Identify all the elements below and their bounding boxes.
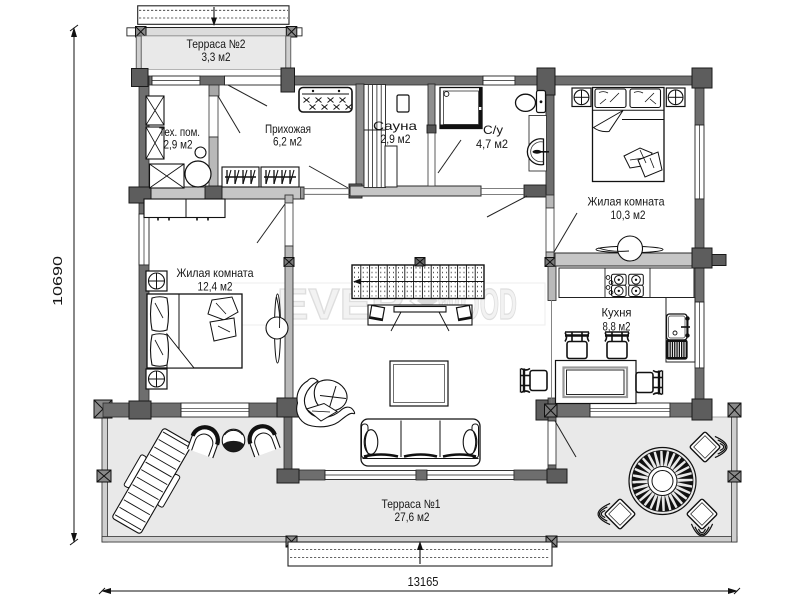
- svg-text:6,2 м2: 6,2 м2: [273, 135, 302, 149]
- svg-text:Жилая комната: Жилая комната: [177, 266, 254, 280]
- svg-text:27,6 м2: 27,6 м2: [395, 510, 430, 524]
- svg-text:Жилая комната: Жилая комната: [588, 195, 665, 209]
- svg-text:12,4 м2: 12,4 м2: [198, 280, 233, 294]
- svg-text:Терраса №1: Терраса №1: [382, 497, 441, 511]
- svg-text:3,3 м2: 3,3 м2: [202, 50, 231, 64]
- svg-text:8,8 м2: 8,8 м2: [603, 320, 631, 334]
- svg-text:10690: 10690: [50, 256, 65, 306]
- svg-text:Сауна: Сауна: [373, 119, 417, 133]
- svg-text:4,7 м2: 4,7 м2: [476, 137, 508, 151]
- svg-text:13165: 13165: [408, 575, 439, 589]
- svg-text:10,3 м2: 10,3 м2: [611, 208, 646, 222]
- svg-text:2,9 м2: 2,9 м2: [164, 138, 193, 152]
- svg-text:Терраса №2: Терраса №2: [187, 37, 246, 51]
- svg-text:2,9 м2: 2,9 м2: [381, 132, 411, 146]
- svg-text:С/у: С/у: [483, 123, 503, 137]
- svg-text:Кухня: Кухня: [602, 306, 632, 320]
